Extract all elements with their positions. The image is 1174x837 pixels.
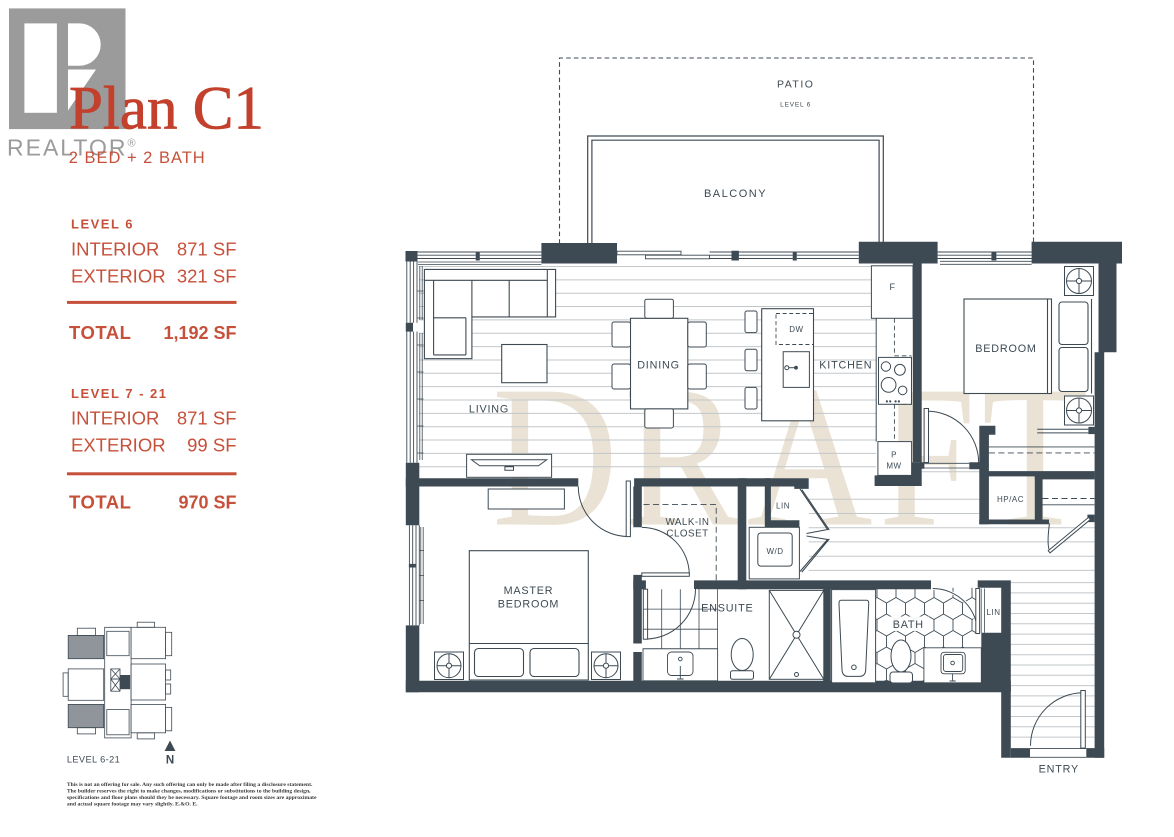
svg-text:PATIO: PATIO — [777, 79, 814, 91]
svg-text:CLOSET: CLOSET — [666, 529, 708, 540]
svg-text:BATH: BATH — [893, 619, 924, 631]
svg-text:BALCONY: BALCONY — [704, 188, 767, 200]
svg-text:ENSUITE: ENSUITE — [701, 603, 753, 615]
svg-text:Plan C1: Plan C1 — [69, 76, 264, 143]
svg-text:871 SF: 871 SF — [177, 239, 237, 260]
svg-text:TOTAL: TOTAL — [69, 492, 131, 513]
svg-text:INTERIOR: INTERIOR — [71, 239, 159, 260]
svg-text:1,192 SF: 1,192 SF — [163, 323, 236, 343]
svg-text:The builder reserves the right: The builder reserves the right to make c… — [67, 789, 311, 795]
svg-text:99 SF: 99 SF — [187, 435, 236, 456]
svg-text:specifications and floor plans: specifications and floor plans should th… — [67, 795, 317, 801]
svg-text:This is not an offering for sa: This is not an offering for sale. Any su… — [67, 782, 313, 788]
svg-text:BEDROOM: BEDROOM — [975, 343, 1036, 355]
svg-text:MASTER: MASTER — [504, 585, 554, 597]
svg-text:LIN: LIN — [987, 608, 1001, 617]
svg-text:DINING: DINING — [637, 360, 680, 372]
svg-text:P: P — [891, 451, 897, 460]
svg-text:970 SF: 970 SF — [178, 493, 236, 513]
svg-text:MW: MW — [886, 462, 901, 471]
svg-text:321 SF: 321 SF — [177, 266, 237, 287]
svg-text:INTERIOR: INTERIOR — [71, 408, 159, 429]
svg-text:N: N — [166, 755, 174, 767]
svg-text:ENTRY: ENTRY — [1039, 764, 1079, 776]
svg-text:2 BED + 2 BATH: 2 BED + 2 BATH — [69, 149, 206, 167]
svg-text:TOTAL: TOTAL — [69, 322, 131, 343]
svg-text:and actual square footage may: and actual square footage may vary sligh… — [67, 802, 198, 808]
svg-text:DW: DW — [789, 325, 803, 334]
svg-text:LIVING: LIVING — [469, 404, 509, 416]
svg-text:EXTERIOR: EXTERIOR — [71, 266, 166, 287]
svg-text:LEVEL 6: LEVEL 6 — [71, 217, 134, 232]
svg-text:BEDROOM: BEDROOM — [498, 599, 559, 611]
svg-text:HP/AC: HP/AC — [997, 495, 1024, 504]
svg-text:WALK-IN: WALK-IN — [666, 517, 710, 528]
svg-text:F: F — [890, 282, 896, 292]
svg-text:EXTERIOR: EXTERIOR — [71, 435, 166, 456]
svg-text:LEVEL 7 - 21: LEVEL 7 - 21 — [71, 386, 168, 401]
svg-text:LEVEL 6-21: LEVEL 6-21 — [67, 755, 120, 765]
svg-text:LEVEL 6: LEVEL 6 — [780, 102, 811, 109]
svg-text:W/D: W/D — [766, 547, 783, 556]
svg-text:871 SF: 871 SF — [177, 408, 237, 429]
svg-text:LIN: LIN — [776, 502, 790, 511]
svg-text:KITCHEN: KITCHEN — [819, 360, 872, 372]
